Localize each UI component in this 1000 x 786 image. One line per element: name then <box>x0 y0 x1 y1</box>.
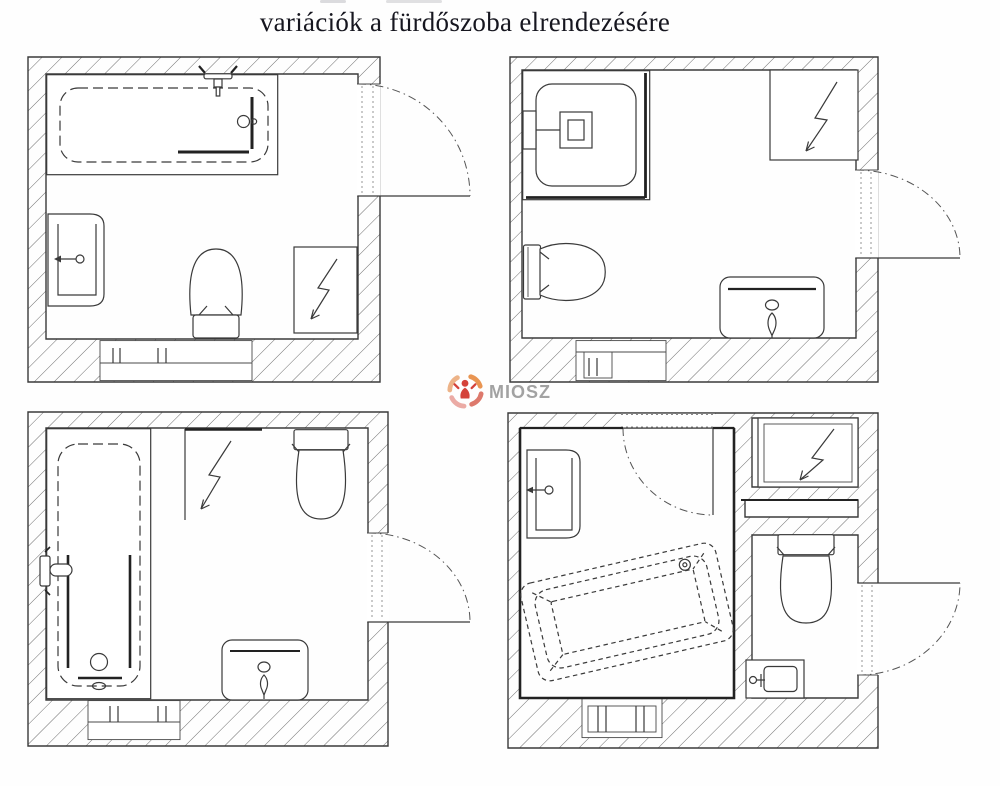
radiator <box>582 699 662 738</box>
plan-top-right <box>510 57 960 382</box>
lightning-icon <box>201 441 231 509</box>
door-swing <box>357 84 470 196</box>
plan-bottom-right <box>508 413 960 748</box>
washing-machine <box>770 70 858 160</box>
toilet <box>190 249 242 338</box>
miosz-logo-icon <box>446 371 484 409</box>
toilet <box>524 244 606 301</box>
washbasin <box>222 640 308 700</box>
washing-machine <box>294 247 357 333</box>
washing-machine <box>758 418 858 487</box>
washbasin <box>526 450 580 538</box>
watermark: miosz <box>446 371 551 409</box>
bathtub-rotated <box>518 541 735 683</box>
hand-basin <box>746 660 804 698</box>
plan-bottom-left <box>28 412 470 746</box>
washbasin <box>720 277 824 338</box>
shower-cabin <box>523 71 650 200</box>
bathtub <box>40 429 151 699</box>
watermark-text: miosz <box>489 378 551 403</box>
washbasin <box>48 214 104 306</box>
radiator <box>88 701 180 740</box>
door-swing <box>857 583 960 675</box>
door-swing <box>855 170 960 258</box>
bathtub <box>47 66 278 175</box>
radiator <box>576 341 666 381</box>
toilet <box>777 535 835 623</box>
toilet <box>292 430 350 519</box>
door-swing <box>367 533 470 622</box>
plan-top-left <box>28 57 470 382</box>
washing-machine-niche <box>185 429 262 520</box>
radiator <box>100 341 252 381</box>
interior-door-swing <box>621 414 715 515</box>
